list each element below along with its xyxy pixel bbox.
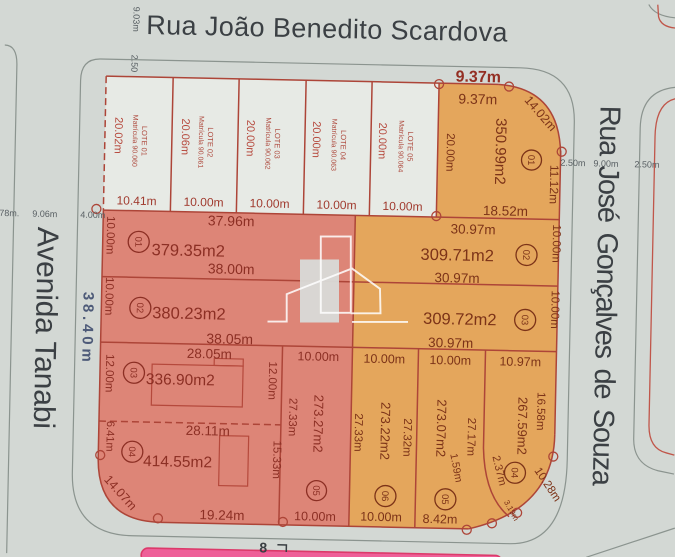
svg-text:02: 02: [134, 302, 145, 313]
svg-text:9.00m: 9.00m: [593, 158, 618, 169]
svg-text:38.05m: 38.05m: [206, 330, 253, 347]
svg-text:12.00m: 12.00m: [265, 361, 278, 400]
svg-text:38.00m: 38.00m: [208, 260, 255, 277]
svg-text:10.41m: 10.41m: [116, 193, 156, 208]
svg-text:267.59m2: 267.59m2: [514, 397, 530, 455]
svg-text:04: 04: [126, 446, 137, 457]
svg-text:414.55m2: 414.55m2: [143, 453, 212, 471]
svg-text:380.23m2: 380.23m2: [152, 304, 226, 324]
svg-text:01: 01: [525, 155, 536, 166]
svg-text:18.52m: 18.52m: [483, 203, 528, 219]
svg-text:10.00m: 10.00m: [249, 196, 289, 211]
svg-text:379.35m2: 379.35m2: [151, 241, 225, 261]
svg-text:8.42m: 8.42m: [422, 512, 457, 527]
svg-text:20.00m: 20.00m: [443, 133, 456, 172]
svg-text:10.00m: 10.00m: [294, 509, 336, 524]
svg-text:10.00m: 10.00m: [549, 224, 562, 263]
svg-text:273.07m2: 273.07m2: [433, 399, 449, 457]
svg-text:9.03m: 9.03m: [131, 7, 142, 32]
svg-text:15.33m: 15.33m: [270, 440, 283, 479]
svg-text:9.37m: 9.37m: [455, 68, 501, 86]
svg-text:10.00m: 10.00m: [316, 198, 356, 213]
svg-text:10.00m: 10.00m: [297, 349, 339, 364]
svg-text:20.02m: 20.02m: [112, 117, 125, 154]
svg-text:20.00m: 20.00m: [310, 121, 323, 158]
svg-text:Matrícula 90.060: Matrícula 90.060: [130, 115, 138, 167]
svg-text:19.24m: 19.24m: [199, 507, 244, 523]
svg-text:4.00m: 4.00m: [80, 210, 105, 221]
svg-text:LOTE 05: LOTE 05: [405, 131, 415, 161]
svg-text:10.00m: 10.00m: [103, 216, 116, 255]
svg-text:Matrícula 90.062: Matrícula 90.062: [263, 117, 271, 169]
svg-text:Matrícula 90.061: Matrícula 90.061: [196, 116, 204, 168]
svg-text:04: 04: [508, 467, 519, 478]
svg-text:30.97m: 30.97m: [428, 335, 473, 351]
svg-text:Matrícula 90.064: Matrícula 90.064: [396, 120, 404, 172]
svg-text:37.96m: 37.96m: [208, 212, 255, 229]
svg-text:78m.: 78m.: [0, 208, 19, 218]
svg-text:9.06m: 9.06m: [32, 209, 57, 220]
svg-text:28.11m: 28.11m: [186, 423, 230, 439]
svg-text:8: 8: [259, 539, 267, 555]
svg-text:06: 06: [379, 491, 390, 502]
svg-text:05: 05: [310, 485, 321, 496]
svg-text:10.00m: 10.00m: [183, 195, 223, 210]
svg-text:6.41m: 6.41m: [103, 421, 116, 452]
svg-text:10.00m: 10.00m: [363, 352, 405, 367]
svg-text:20.06m: 20.06m: [179, 118, 192, 155]
svg-text:28.05m: 28.05m: [187, 346, 232, 362]
svg-text:9.37m: 9.37m: [458, 91, 497, 108]
svg-text:30.97m: 30.97m: [434, 270, 479, 286]
svg-text:10.00m: 10.00m: [360, 510, 402, 525]
svg-text:273.22m2: 273.22m2: [377, 402, 393, 460]
svg-text:309.72m2: 309.72m2: [423, 310, 497, 330]
svg-text:10.00m: 10.00m: [429, 353, 471, 368]
svg-text:27.17m: 27.17m: [464, 418, 477, 457]
svg-text:273.27m2: 273.27m2: [310, 395, 326, 453]
svg-text:11.12m: 11.12m: [547, 165, 562, 204]
svg-text:27.32m: 27.32m: [400, 418, 413, 457]
svg-text:02: 02: [520, 250, 531, 261]
svg-text:LOTE 02: LOTE 02: [206, 127, 216, 157]
svg-text:309.71m2: 309.71m2: [420, 246, 494, 266]
svg-text:20.00m: 20.00m: [375, 122, 388, 159]
svg-text:2.50m: 2.50m: [560, 158, 585, 169]
svg-text:LOTE 04: LOTE 04: [338, 130, 348, 160]
svg-text:27.33m: 27.33m: [351, 413, 364, 452]
svg-text:10.00m: 10.00m: [102, 277, 115, 316]
svg-text:10.97m: 10.97m: [499, 354, 541, 369]
svg-text:10.00m: 10.00m: [548, 290, 561, 329]
svg-text:30.97m: 30.97m: [450, 221, 495, 237]
svg-text:Avenida Tanabi: Avenida Tanabi: [27, 227, 64, 430]
svg-text:03: 03: [127, 367, 138, 378]
svg-text:336.90m2: 336.90m2: [146, 371, 215, 389]
svg-text:10.00m: 10.00m: [382, 199, 422, 214]
svg-text:2.50: 2.50: [129, 55, 139, 73]
svg-text:Matrícula 90.063: Matrícula 90.063: [329, 119, 337, 171]
svg-text:01: 01: [132, 236, 143, 247]
svg-text:LOTE 03: LOTE 03: [272, 129, 282, 159]
svg-text:2.50m: 2.50m: [634, 159, 659, 170]
svg-text:05: 05: [439, 494, 450, 505]
svg-text:16.58m: 16.58m: [534, 392, 547, 431]
svg-text:LOTE 01: LOTE 01: [140, 126, 150, 156]
svg-text:350.99m2: 350.99m2: [491, 118, 509, 185]
svg-text:12.00m: 12.00m: [103, 354, 116, 393]
svg-text:20.00m: 20.00m: [244, 120, 257, 157]
svg-text:27.33m: 27.33m: [286, 398, 299, 437]
svg-text:03: 03: [519, 315, 530, 326]
